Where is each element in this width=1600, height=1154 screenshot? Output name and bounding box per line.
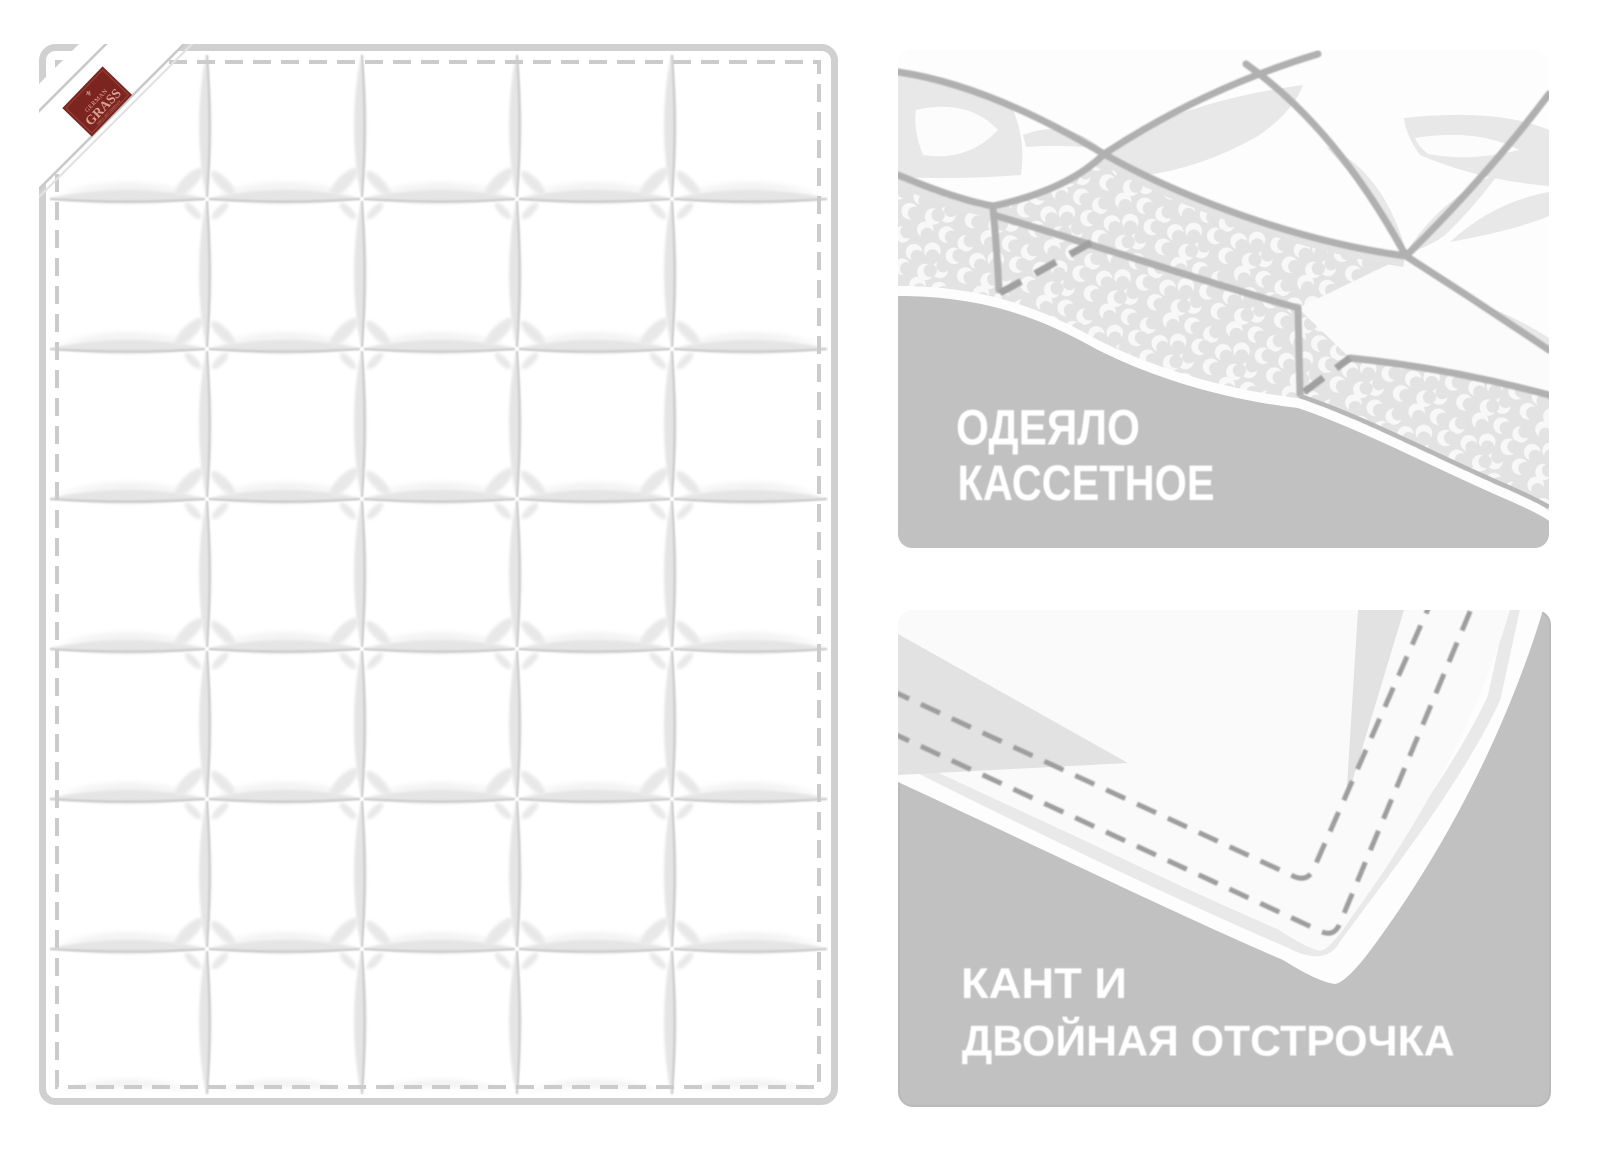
svg-text:КАССЕТНОЕ: КАССЕТНОЕ (958, 455, 1215, 511)
svg-text:КАНТ И: КАНТ И (961, 960, 1127, 1008)
svg-text:ОДЕЯЛО: ОДЕЯЛО (956, 400, 1140, 456)
svg-text:ДВОЙНАЯ ОТСТРОЧКА: ДВОЙНАЯ ОТСТРОЧКА (962, 1017, 1455, 1066)
